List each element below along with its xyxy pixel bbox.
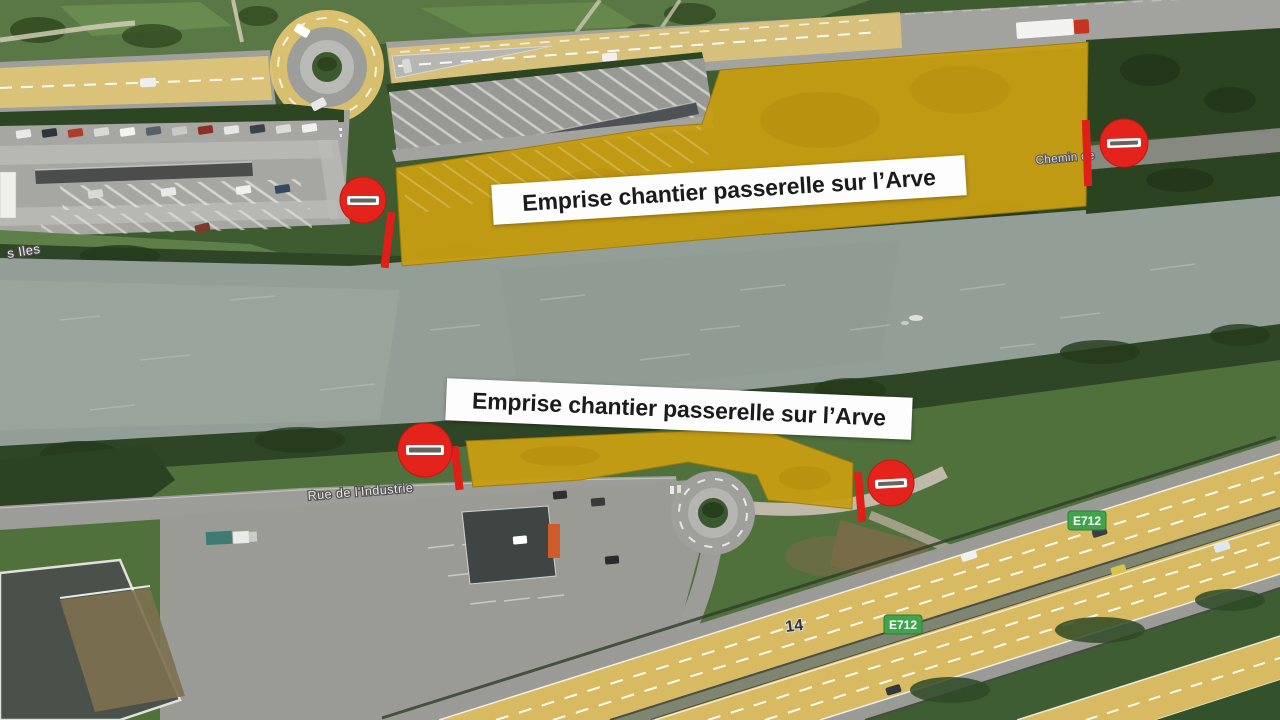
no-entry-icon-1 xyxy=(340,177,386,223)
route-badge-text: E712 xyxy=(1073,514,1101,528)
route-badge-text: E712 xyxy=(889,618,917,632)
car xyxy=(140,78,156,88)
no-entry-icon-3 xyxy=(398,423,452,477)
car xyxy=(602,52,618,61)
warehouse-building xyxy=(462,506,556,584)
exit-number-label: 14 xyxy=(784,617,804,636)
orange-containers xyxy=(548,524,560,558)
no-entry-icon-4 xyxy=(868,460,914,506)
parked-truck xyxy=(0,172,16,218)
map-canvas: s Iles Rue de l'Industrie Chemin de E712… xyxy=(0,0,1280,720)
no-entry-icon-2 xyxy=(1100,119,1148,167)
route-badge-e712-upper: E712 xyxy=(1068,511,1106,530)
route-badge-e712-lower: E712 xyxy=(884,615,922,634)
river-wake xyxy=(909,315,923,321)
satellite-map: s Iles Rue de l'Industrie Chemin de E712… xyxy=(0,0,1280,720)
parking-lot xyxy=(0,104,350,238)
